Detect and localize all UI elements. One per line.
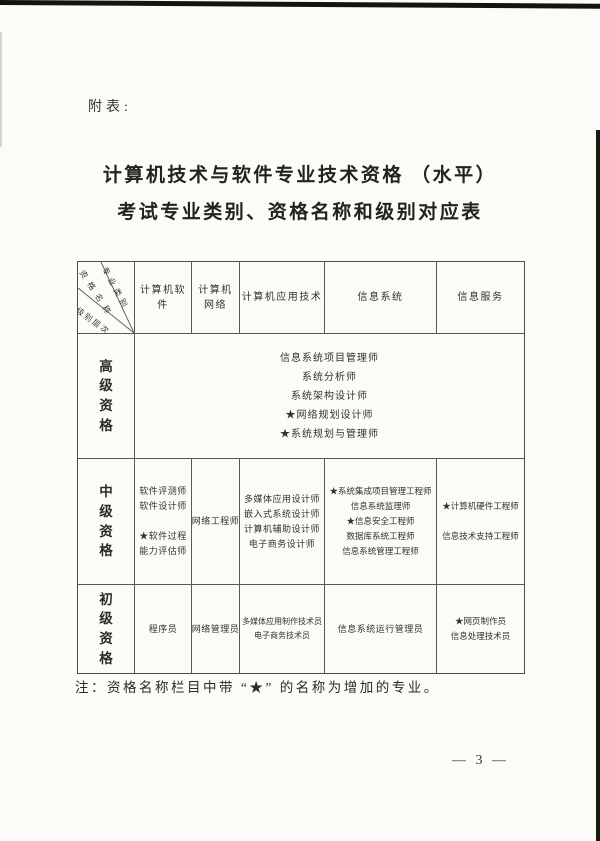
junior-info-service-cell: ★网页制作员 信息处理技术员 xyxy=(436,584,524,673)
qualification-item: 能力评估师 xyxy=(139,544,187,559)
middle-info-service-cell: ★计算机硬件工程师 信息技术支持工程师 xyxy=(436,458,524,584)
qualification-item: 信息系统管理工程师 xyxy=(342,544,419,559)
level-cell-senior: 高级资格 xyxy=(78,333,134,458)
column-header-info-system: 信息系统 xyxy=(324,262,436,333)
footnote: 注：资格名称栏目中带 “★” 的名称为增加的专业。 xyxy=(75,676,440,696)
level-label-senior: 高级资格 xyxy=(99,357,114,435)
junior-application-cell: 多媒体应用制作技术员 电子商务技术员 xyxy=(239,584,324,673)
qualification-item: ★系统集成项目管理工程师 xyxy=(329,484,431,499)
qualification-item: ★信息安全工程师 xyxy=(346,514,414,529)
qualification-item: 软件设计师 xyxy=(139,499,187,514)
qualification-item: 信息技术支持工程师 xyxy=(442,529,519,544)
attachment-label: 附表: xyxy=(88,96,132,116)
qualification-item: 系统架构设计师 xyxy=(291,387,368,406)
qualification-table: 专业类别 资格名称 级别层次 计算机软件 计算机 网络 计算机应用技术 信息系统… xyxy=(77,261,525,674)
junior-info-system-cell: 信息系统运行管理员 xyxy=(324,584,436,673)
document-title-line2: 考试专业类别、资格名称和级别对应表 xyxy=(0,197,600,224)
column-header-network: 计算机 网络 xyxy=(191,262,239,333)
qualification-item: 信息系统运行管理员 xyxy=(338,622,424,637)
qualification-item: 嵌入式系统设计师 xyxy=(244,507,320,522)
qualification-item: 网络工程师 xyxy=(192,514,240,529)
junior-network-cell: 网络管理员 xyxy=(191,584,239,673)
qualification-item: ★网络规划设计师 xyxy=(286,406,374,425)
qualification-item: 信息系统项目管理师 xyxy=(280,349,379,368)
column-header-application: 计算机应用技术 xyxy=(239,262,324,333)
qualification-item: 数据库系统工程师 xyxy=(346,529,414,544)
qualification-item: ★软件过程 xyxy=(139,529,187,544)
qualification-item: 多媒体应用设计师 xyxy=(244,492,320,507)
qualification-item: 网络管理员 xyxy=(192,622,240,637)
qualification-item: ★计算机硬件工程师 xyxy=(442,499,519,514)
senior-merged-cell: 信息系统项目管理师 系统分析师 系统架构设计师 ★网络规划设计师 ★系统规划与管… xyxy=(134,333,524,458)
qualification-item: 电子商务技术员 xyxy=(254,629,310,643)
level-label-junior: 初级资格 xyxy=(99,590,114,668)
document-title-line1: 计算机技术与软件专业技术资格 （水平） xyxy=(0,160,600,187)
middle-info-system-cell: ★系统集成项目管理工程师 信息系统监理师 ★信息安全工程师 数据库系统工程师 信… xyxy=(324,458,436,584)
qualification-item: 信息系统监理师 xyxy=(351,499,411,514)
qualification-item: 电子商务设计师 xyxy=(249,537,316,552)
middle-application-cell: 多媒体应用设计师 嵌入式系统设计师 计算机辅助设计师 电子商务设计师 xyxy=(239,458,324,584)
qualification-item: 软件评测师 xyxy=(139,484,187,499)
qualification-item: 程序员 xyxy=(149,622,178,637)
scan-edge-right xyxy=(596,130,600,841)
qualification-item: ★网页制作员 xyxy=(455,614,506,629)
level-cell-junior: 初级资格 xyxy=(78,584,134,673)
scan-edge-top xyxy=(0,0,600,9)
qualification-item: 多媒体应用制作技术员 xyxy=(242,615,322,629)
page-number: — 3 — xyxy=(452,753,509,769)
column-header-software: 计算机软件 xyxy=(134,262,191,333)
scan-edge-left-mark xyxy=(0,32,2,147)
middle-network-cell: 网络工程师 xyxy=(191,458,239,584)
corner-header-cell: 专业类别 资格名称 级别层次 xyxy=(78,262,134,333)
middle-software-cell: 软件评测师 软件设计师 ★软件过程 能力评估师 xyxy=(134,458,191,584)
level-cell-middle: 中级资格 xyxy=(78,458,134,584)
junior-software-cell: 程序员 xyxy=(134,584,191,673)
level-label-middle: 中级资格 xyxy=(99,482,114,560)
column-header-info-service: 信息服务 xyxy=(436,262,524,333)
qualification-item: 系统分析师 xyxy=(302,368,357,387)
qualification-item: 信息处理技术员 xyxy=(451,629,511,644)
qualification-item: ★系统规划与管理师 xyxy=(280,425,379,444)
qualification-item: 计算机辅助设计师 xyxy=(244,522,320,537)
scanned-document-page: 附表: 计算机技术与软件专业技术资格 （水平） 考试专业类别、资格名称和级别对应… xyxy=(0,0,600,841)
